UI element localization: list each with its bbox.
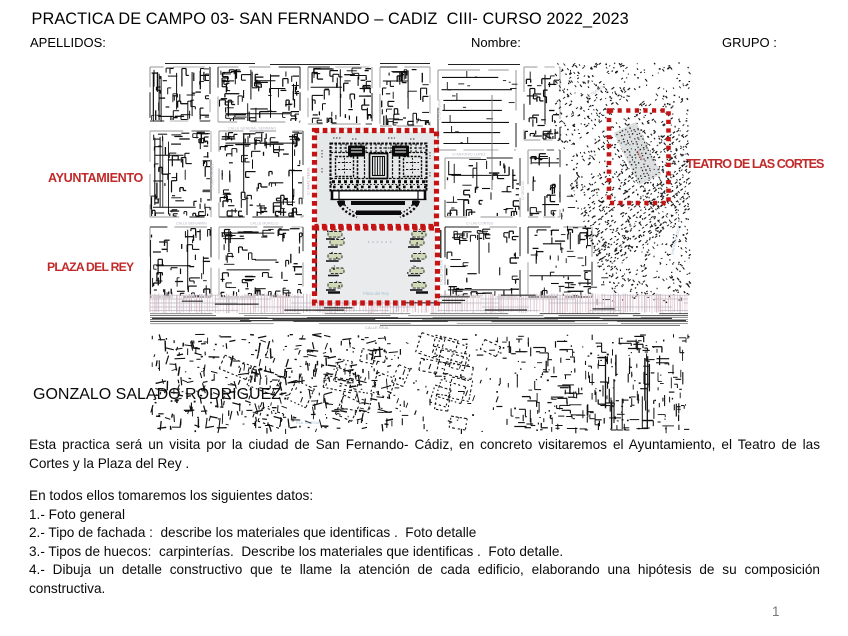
- svg-text:C/ GRAVINA: C/ GRAVINA: [438, 99, 442, 120]
- svg-text:CALLE BENJAMIN: CALLE BENJAMIN: [176, 222, 207, 226]
- svg-text:CALLE MURILLO: CALLE MURILLO: [250, 222, 279, 226]
- svg-text:C/ CECILIO: C/ CECILIO: [521, 181, 525, 200]
- svg-text:C/ SAN RAFAEL: C/ SAN RAFAEL: [211, 163, 215, 190]
- svg-text:CALLE GENERAL SERRANO: CALLE GENERAL SERRANO: [228, 127, 276, 131]
- svg-text:C/ ISAAC PERAL: C/ ISAAC PERAL: [307, 167, 311, 195]
- svg-text:CALLE REAL: CALLE REAL: [365, 325, 390, 330]
- svg-text:C/ ANTONIO LOPEZ: C/ ANTONIO LOPEZ: [452, 153, 486, 157]
- svg-text:PZA. IGLESIA: PZA. IGLESIA: [296, 421, 320, 425]
- svg-text:C/ LAS CORTES: C/ LAS CORTES: [466, 222, 494, 226]
- svg-text:CALLE COLON: CALLE COLON: [440, 259, 444, 285]
- svg-text:Plaza del Rey: Plaza del Rey: [363, 291, 390, 296]
